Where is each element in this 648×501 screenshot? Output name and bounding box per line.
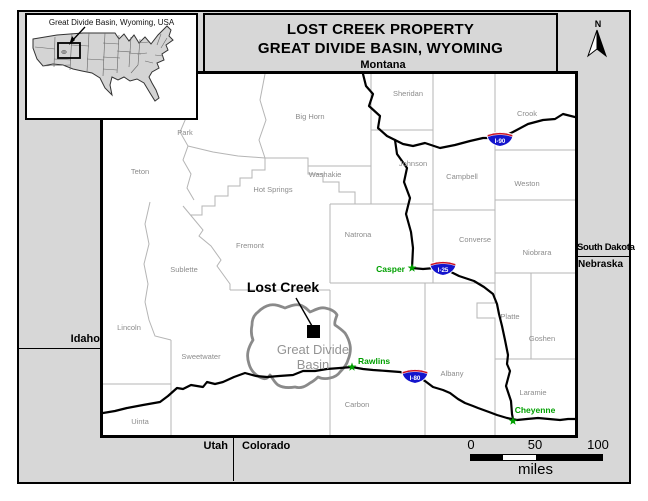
scale-segment-black (471, 455, 503, 460)
neighbor-state-idaho: Idaho (58, 333, 100, 345)
interstate-shields: I-90 I-25 I-80 (402, 132, 513, 383)
county-label-sheridan: Sheridan (393, 89, 423, 98)
map-title-line2: GREAT DIVIDE BASIN, WYOMING (258, 39, 503, 58)
scale-tick-100: 100 (587, 437, 609, 452)
neighbor-state-colorado: Colorado (242, 440, 290, 452)
inset-basin-dot (62, 50, 67, 54)
i25-shield-label: I-25 (438, 267, 449, 274)
utah-colorado-border-line (233, 437, 234, 481)
city-label-rawlins: Rawlins (358, 356, 390, 366)
county-label-weston: Weston (514, 179, 539, 188)
usa-inset-map: Great Divide Basin, Wyoming, USA (25, 13, 198, 120)
scale-bar-track (470, 454, 603, 461)
neighbor-state-utah: Utah (186, 440, 228, 452)
county-boundary-lines (103, 74, 575, 435)
southdakota-nebraska-border-line (575, 256, 629, 257)
county-label-niobrara: Niobrara (523, 248, 553, 257)
neighbor-state-south-dakota: South Dakota (577, 242, 635, 253)
city-star-rawlins (348, 362, 357, 370)
county-label-carbon: Carbon (345, 400, 370, 409)
i90-shield-icon: I-90 (487, 132, 513, 146)
scale-tick-0: 0 (467, 437, 474, 452)
scale-tick-50: 50 (528, 437, 542, 452)
county-label-hot-springs: Hot Springs (253, 185, 292, 194)
scale-segment-white (503, 455, 536, 460)
county-label-sublette: Sublette (170, 265, 198, 274)
county-label-teton: Teton (131, 167, 149, 176)
county-label-uinta: Uinta (131, 417, 149, 426)
lost-creek-label: Lost Creek (247, 279, 320, 295)
city-star-casper (408, 263, 417, 271)
basin-label-line1: Great Divide (277, 342, 349, 357)
basin-label-line2: Basin (297, 357, 330, 372)
county-label-big-horn: Big Horn (295, 112, 324, 121)
county-label-washakie: Washakie (309, 170, 342, 179)
scale-bar-ticks: 0 50 100 (455, 437, 625, 452)
county-label-fremont: Fremont (236, 241, 265, 250)
scale-unit-label: miles (470, 461, 601, 478)
i80-shield-label: I-80 (410, 375, 421, 382)
highway-i90-line (363, 74, 575, 148)
map-title-line1: LOST CREEK PROPERTY (287, 20, 474, 39)
neighbor-state-nebraska: Nebraska (578, 259, 623, 270)
north-arrow-right-half (597, 30, 606, 56)
county-label-goshen: Goshen (529, 334, 555, 343)
i90-shield-label: I-90 (495, 138, 506, 145)
county-label-campbell: Campbell (446, 172, 478, 181)
city-label-cheyenne: Cheyenne (515, 405, 556, 415)
county-label-johnson: Johnson (399, 159, 427, 168)
wyoming-map: Park Big Horn Sheridan Crook Teton Washa… (100, 71, 578, 438)
county-label-converse: Converse (459, 235, 491, 244)
county-label-albany: Albany (441, 369, 464, 378)
city-markers (348, 263, 518, 424)
county-label-platte: Platte (500, 312, 519, 321)
city-label-casper: Casper (376, 264, 406, 274)
county-label-sweetwater: Sweetwater (181, 352, 221, 361)
scale-segment-black (536, 455, 602, 460)
county-label-lincoln: Lincoln (117, 323, 141, 332)
county-label-park: Park (177, 128, 193, 137)
county-label-laramie: Laramie (519, 388, 546, 397)
north-arrow-left-half (588, 30, 597, 56)
neighbor-state-montana: Montana (347, 59, 419, 71)
county-label-natrona: Natrona (345, 230, 373, 239)
county-label-crook: Crook (517, 109, 537, 118)
north-arrow: N (582, 16, 612, 60)
interstate-highway-lines (103, 74, 575, 420)
idaho-utah-border-line (19, 348, 100, 349)
north-arrow-label: N (595, 19, 602, 29)
scale-bar: 0 50 100 miles (455, 437, 625, 481)
lost-creek-marker (307, 325, 320, 338)
